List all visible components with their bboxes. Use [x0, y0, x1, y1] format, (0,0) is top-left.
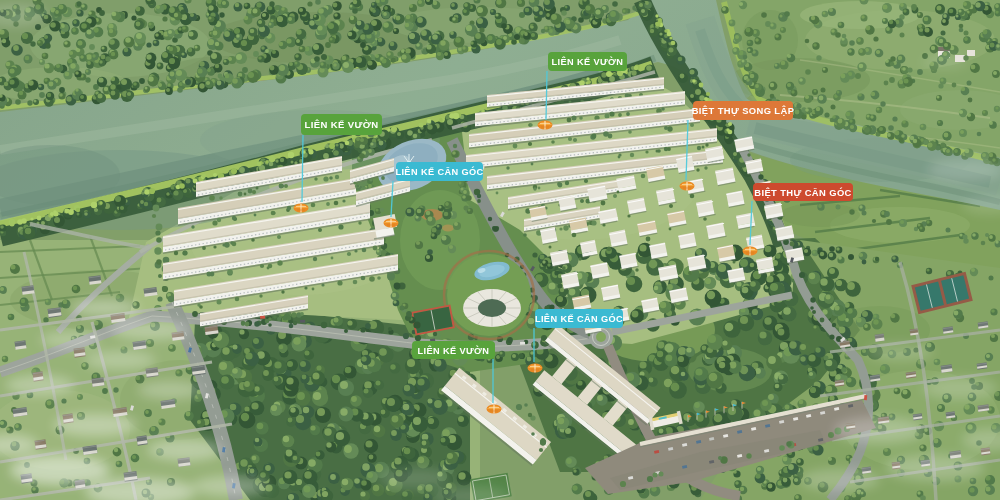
- svg-text:LIÊN KẾ CĂN GÓC: LIÊN KẾ CĂN GÓC: [535, 313, 623, 324]
- svg-text:BIỆT THỰ CĂN GÓC: BIỆT THỰ CĂN GÓC: [754, 187, 852, 198]
- svg-text:LIÊN KẾ VƯỜN: LIÊN KẾ VƯỜN: [552, 56, 624, 67]
- svg-text:LIÊN KẾ VƯỜN: LIÊN KẾ VƯỜN: [418, 345, 490, 356]
- svg-text:LIÊN KẾ VƯỜN: LIÊN KẾ VƯỜN: [304, 119, 378, 130]
- svg-text:BIỆT THỰ SONG LẬP: BIỆT THỰ SONG LẬP: [692, 105, 795, 116]
- svg-text:LIÊN KẾ CĂN GÓC: LIÊN KẾ CĂN GÓC: [395, 166, 483, 177]
